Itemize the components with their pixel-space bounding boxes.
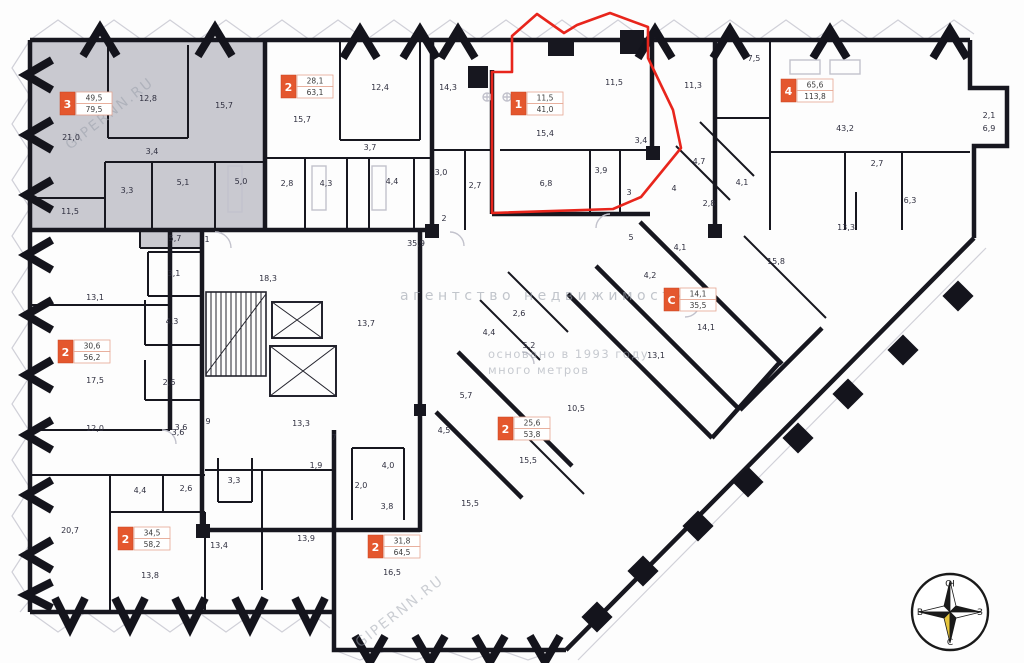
room-area-label: 15,4 <box>536 129 554 138</box>
stairwell <box>206 292 266 376</box>
unit-living-area: 65,6 <box>807 81 824 90</box>
unit-total-area: 79,5 <box>86 105 103 114</box>
room-area-label: 7 <box>331 433 336 442</box>
unit-label-2room-b[interactable]: 2 30,6 56,2 <box>58 340 110 363</box>
room-area-label: 4,1 <box>674 243 687 252</box>
room-area-label: 3,4 <box>146 147 159 156</box>
unit-total-area: 56,2 <box>84 353 101 362</box>
room-area-label: 6,3 <box>904 196 917 205</box>
unit-living-area: 25,6 <box>524 419 541 428</box>
compass-east-label: В <box>917 608 923 618</box>
room-area-label: 5,7 <box>460 391 473 400</box>
unit-room-count: 1 <box>515 98 523 111</box>
room-area-label: 13,1 <box>647 351 665 360</box>
room-area-label: 18,3 <box>259 274 277 283</box>
room-area-label: 15,8 <box>767 257 785 266</box>
compass-icon: Ю З С В <box>912 574 988 650</box>
unit-room-count: 2 <box>285 81 293 94</box>
unit-room-count: 4 <box>785 85 793 98</box>
room-area-label: 4,4 <box>134 486 147 495</box>
unit-room-count: 2 <box>62 346 70 359</box>
room-area-label: 13,7 <box>357 319 375 328</box>
site-watermark: GIPERNN.RU <box>353 572 447 651</box>
room-area-label: 17,5 <box>86 376 104 385</box>
room-area-label: 7,5 <box>748 54 761 63</box>
unit-label-4room[interactable]: 4 65,6 113,8 <box>781 79 833 102</box>
unit-total-area: 41,0 <box>537 105 554 114</box>
room-area-label: 14,1 <box>697 323 715 332</box>
elevator-shafts <box>270 302 336 396</box>
room-area-label: 2,0 <box>355 481 368 490</box>
room-area-label: 2,8 <box>703 199 716 208</box>
room-area-label: 5,7 <box>169 234 182 243</box>
unit-living-area: 49,5 <box>86 94 103 103</box>
unit-room-count: С <box>667 294 675 307</box>
room-area-label: 13,9 <box>297 534 315 543</box>
room-area-label: 3,4 <box>635 136 648 145</box>
room-area-label: 3,7 <box>364 143 377 152</box>
room-area-label: 2,6 <box>513 309 526 318</box>
room-area-label: 4,2 <box>644 271 657 280</box>
room-area-label: 13,1 <box>86 293 104 302</box>
founded-watermark: основано в 1993 году <box>488 347 649 361</box>
room-area-label: 5,0 <box>235 177 248 186</box>
room-area-label: 2,6 <box>180 484 193 493</box>
unit-label-2room-d[interactable]: 2 31,8 64,5 <box>368 535 420 558</box>
unit-total-area: 113,8 <box>804 92 826 101</box>
room-area-label: 2,6 <box>163 378 176 387</box>
unit-total-area: 63,1 <box>307 88 324 97</box>
unit-label-1room-selected[interactable]: 1 11,5 41,0 <box>511 92 563 115</box>
room-area-label: 35,9 <box>407 239 425 248</box>
room-area-label: 3,0 <box>435 168 448 177</box>
unit-total-area: 64,5 <box>394 548 411 557</box>
room-area-label: 1 <box>204 235 209 244</box>
unit-room-count: 2 <box>502 423 510 436</box>
unit-living-area: 28,1 <box>307 77 324 86</box>
unit-label-2room-c[interactable]: 2 34,5 58,2 <box>118 527 170 550</box>
room-area-label: 2,7 <box>871 159 884 168</box>
room-area-label: 13,4 <box>210 541 228 550</box>
brand-watermark: много метров <box>488 363 590 377</box>
wall-piers <box>196 30 722 538</box>
room-area-label: 4,3 <box>320 179 333 188</box>
room-area-label: 9 <box>205 417 210 426</box>
room-area-label: 16,5 <box>383 568 401 577</box>
room-area-label: 4 <box>671 184 676 193</box>
room-area-label: 20,7 <box>61 526 79 535</box>
room-area-label: 1,9 <box>310 461 323 470</box>
room-area-label: 3,6 <box>172 428 185 437</box>
compass-south-label: Ю <box>945 577 955 587</box>
room-area-label: 4,4 <box>483 328 496 337</box>
room-area-label: 5 <box>628 233 633 242</box>
diagonal-facade-teeth <box>581 280 973 632</box>
room-area-label: 5,1 <box>177 178 190 187</box>
room-area-label: 3,3 <box>228 476 241 485</box>
compass-north-label: С <box>947 638 953 648</box>
room-area-label: 21,0 <box>62 133 80 142</box>
room-area-label: 14,3 <box>439 83 457 92</box>
room-area-label: 13,8 <box>141 571 159 580</box>
room-area-label: 3,8 <box>381 502 394 511</box>
unit-room-count: 2 <box>122 533 130 546</box>
room-area-label: 11,5 <box>605 78 623 87</box>
room-area-label: 15,7 <box>215 101 233 110</box>
room-area-label: 2 <box>441 214 446 223</box>
room-area-label: 2,8 <box>281 179 294 188</box>
room-area-label: 3,9 <box>595 166 608 175</box>
room-area-label: 3,3 <box>121 186 134 195</box>
unit-total-area: 35,5 <box>690 301 707 310</box>
floorplan-drawing: GIPERNN.RU GIPERNN.RU агентство недвижим… <box>0 0 1024 663</box>
room-area-label: 4,3 <box>166 317 179 326</box>
room-area-label: 2,7 <box>469 181 482 190</box>
room-area-label: 2,1 <box>983 111 996 120</box>
unit-label-2room-e[interactable]: 2 25,6 53,8 <box>498 417 550 440</box>
room-area-label: 6,8 <box>540 179 553 188</box>
unit-total-area: 53,8 <box>524 430 541 439</box>
room-area-label: 12,0 <box>86 424 104 433</box>
compass-west-label: З <box>977 608 983 618</box>
room-area-label: 43,2 <box>836 124 854 133</box>
room-area-label: 13,3 <box>292 419 310 428</box>
unit-living-area: 11,5 <box>537 94 554 103</box>
room-area-label: 4,5 <box>438 426 451 435</box>
room-area-label: 4,0 <box>382 461 395 470</box>
room-area-label: 10,5 <box>567 404 585 413</box>
room-area-label: 11,5 <box>61 207 79 216</box>
room-area-label: 4,7 <box>693 157 706 166</box>
room-area-label: 12,4 <box>371 83 389 92</box>
room-area-label: 15,5 <box>519 456 537 465</box>
room-area-label: 3 <box>626 188 631 197</box>
room-area-label: 4,1 <box>736 178 749 187</box>
room-area-label: 12,8 <box>139 94 157 103</box>
room-area-label: 11,3 <box>684 81 702 90</box>
floorplan-viewport: GIPERNN.RU GIPERNN.RU агентство недвижим… <box>0 0 1024 663</box>
unit-living-area: 34,5 <box>144 529 161 538</box>
room-area-label: 13,3 <box>837 223 855 232</box>
room-area-label: 5,2 <box>523 341 536 350</box>
room-area-label: 4,4 <box>386 177 399 186</box>
room-area-label: 15,7 <box>293 115 311 124</box>
unit-room-count: 3 <box>64 98 72 111</box>
unit-living-area: 30,6 <box>84 342 101 351</box>
room-area-label: 6,9 <box>983 124 996 133</box>
unit-room-count: 2 <box>372 541 380 554</box>
unit-living-area: 31,8 <box>394 537 411 546</box>
unit-total-area: 58,2 <box>144 540 161 549</box>
room-area-label: 3,1 <box>168 269 181 278</box>
unit-label-3room[interactable]: 3 49,5 79,5 <box>60 92 112 115</box>
unit-living-area: 14,1 <box>690 290 707 299</box>
unit-label-studio[interactable]: С 14,1 35,5 <box>664 288 716 311</box>
room-area-label: 15,5 <box>461 499 479 508</box>
unit-label-2room-a[interactable]: 2 28,1 63,1 <box>281 75 333 98</box>
